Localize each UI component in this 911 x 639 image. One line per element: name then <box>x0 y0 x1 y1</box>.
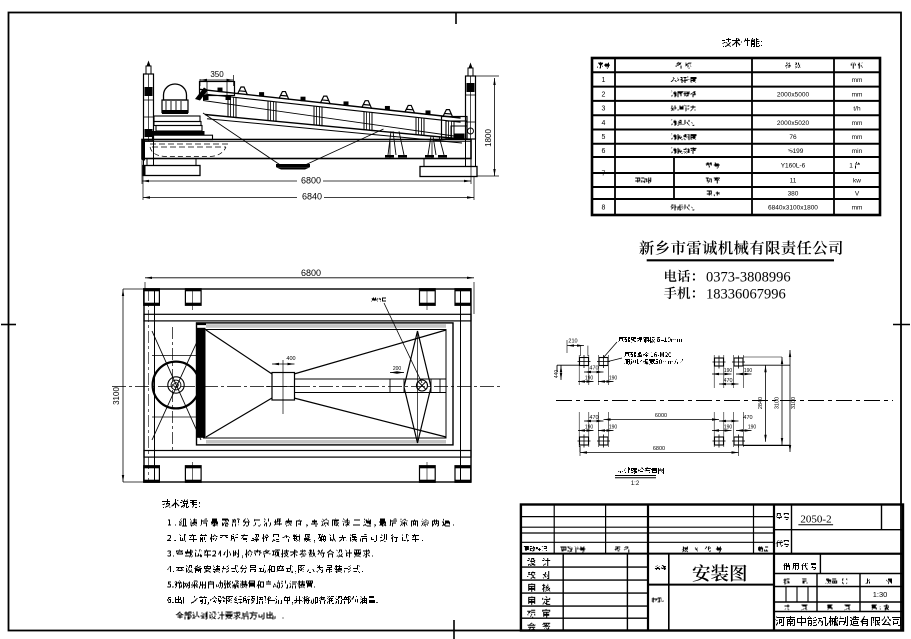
svg-text:1: 1 <box>849 163 853 170</box>
svg-text:190: 190 <box>609 425 618 431</box>
svg-text:mm: mm <box>852 91 863 98</box>
svg-text:3100: 3100 <box>775 397 781 409</box>
svg-text:1:2: 1:2 <box>631 481 640 487</box>
svg-text:199: 199 <box>793 148 804 155</box>
svg-text:mm: mm <box>852 77 863 84</box>
svg-text:6840x3100x1800: 6840x3100x1800 <box>768 205 818 212</box>
svg-text:mm: mm <box>852 205 863 212</box>
svg-text:4: 4 <box>602 120 606 127</box>
svg-text:6800: 6800 <box>653 446 665 452</box>
svg-text:200: 200 <box>393 366 402 372</box>
svg-text:2000x5000: 2000x5000 <box>777 91 810 98</box>
svg-text:190: 190 <box>724 368 733 374</box>
svg-text:190: 190 <box>585 376 594 382</box>
svg-text:190: 190 <box>585 425 594 431</box>
svg-text:190: 190 <box>744 368 753 374</box>
svg-text:470: 470 <box>589 366 598 372</box>
svg-text:6840: 6840 <box>302 192 322 202</box>
svg-text:470: 470 <box>723 378 732 384</box>
svg-text:470: 470 <box>589 415 598 421</box>
svg-text:1800: 1800 <box>484 129 493 147</box>
svg-text:350: 350 <box>210 70 224 79</box>
svg-text:t/h: t/h <box>853 106 861 113</box>
svg-text:3100: 3100 <box>112 387 121 405</box>
svg-text:2050-2: 2050-2 <box>800 514 831 526</box>
svg-text:6800: 6800 <box>301 176 321 186</box>
svg-text:min: min <box>852 148 863 155</box>
svg-text:mm: mm <box>852 120 863 127</box>
svg-text:7: 7 <box>602 171 606 178</box>
svg-text:6: 6 <box>602 148 606 155</box>
svg-text:2: 2 <box>602 91 606 98</box>
svg-text:210: 210 <box>568 339 577 345</box>
svg-text:11: 11 <box>790 178 797 185</box>
svg-text:6000: 6000 <box>655 413 667 419</box>
svg-text:380: 380 <box>788 191 799 198</box>
svg-text:3: 3 <box>602 106 606 113</box>
svg-text:5: 5 <box>602 134 606 141</box>
svg-text:2000x5020: 2000x5020 <box>777 120 810 127</box>
svg-text:8: 8 <box>602 205 606 212</box>
svg-text:440: 440 <box>554 370 560 379</box>
svg-text:V: V <box>855 191 860 198</box>
svg-text:400: 400 <box>286 356 295 362</box>
svg-text:190: 190 <box>748 425 757 431</box>
svg-text:Y160L-6: Y160L-6 <box>781 163 806 170</box>
svg-text:76: 76 <box>789 134 797 141</box>
svg-text:6800: 6800 <box>301 268 321 278</box>
svg-text:1:30: 1:30 <box>873 590 888 599</box>
svg-text:190: 190 <box>724 425 733 431</box>
svg-text:18336067996: 18336067996 <box>706 287 786 303</box>
svg-text:470: 470 <box>743 415 752 421</box>
svg-text:0373-3808996: 0373-3808996 <box>706 270 791 286</box>
svg-text:1: 1 <box>602 77 606 84</box>
svg-text:kw: kw <box>853 178 861 185</box>
svg-text:mm: mm <box>852 134 863 141</box>
svg-text:190: 190 <box>609 376 618 382</box>
svg-text:3100: 3100 <box>791 397 797 409</box>
svg-text:2840: 2840 <box>758 397 764 409</box>
